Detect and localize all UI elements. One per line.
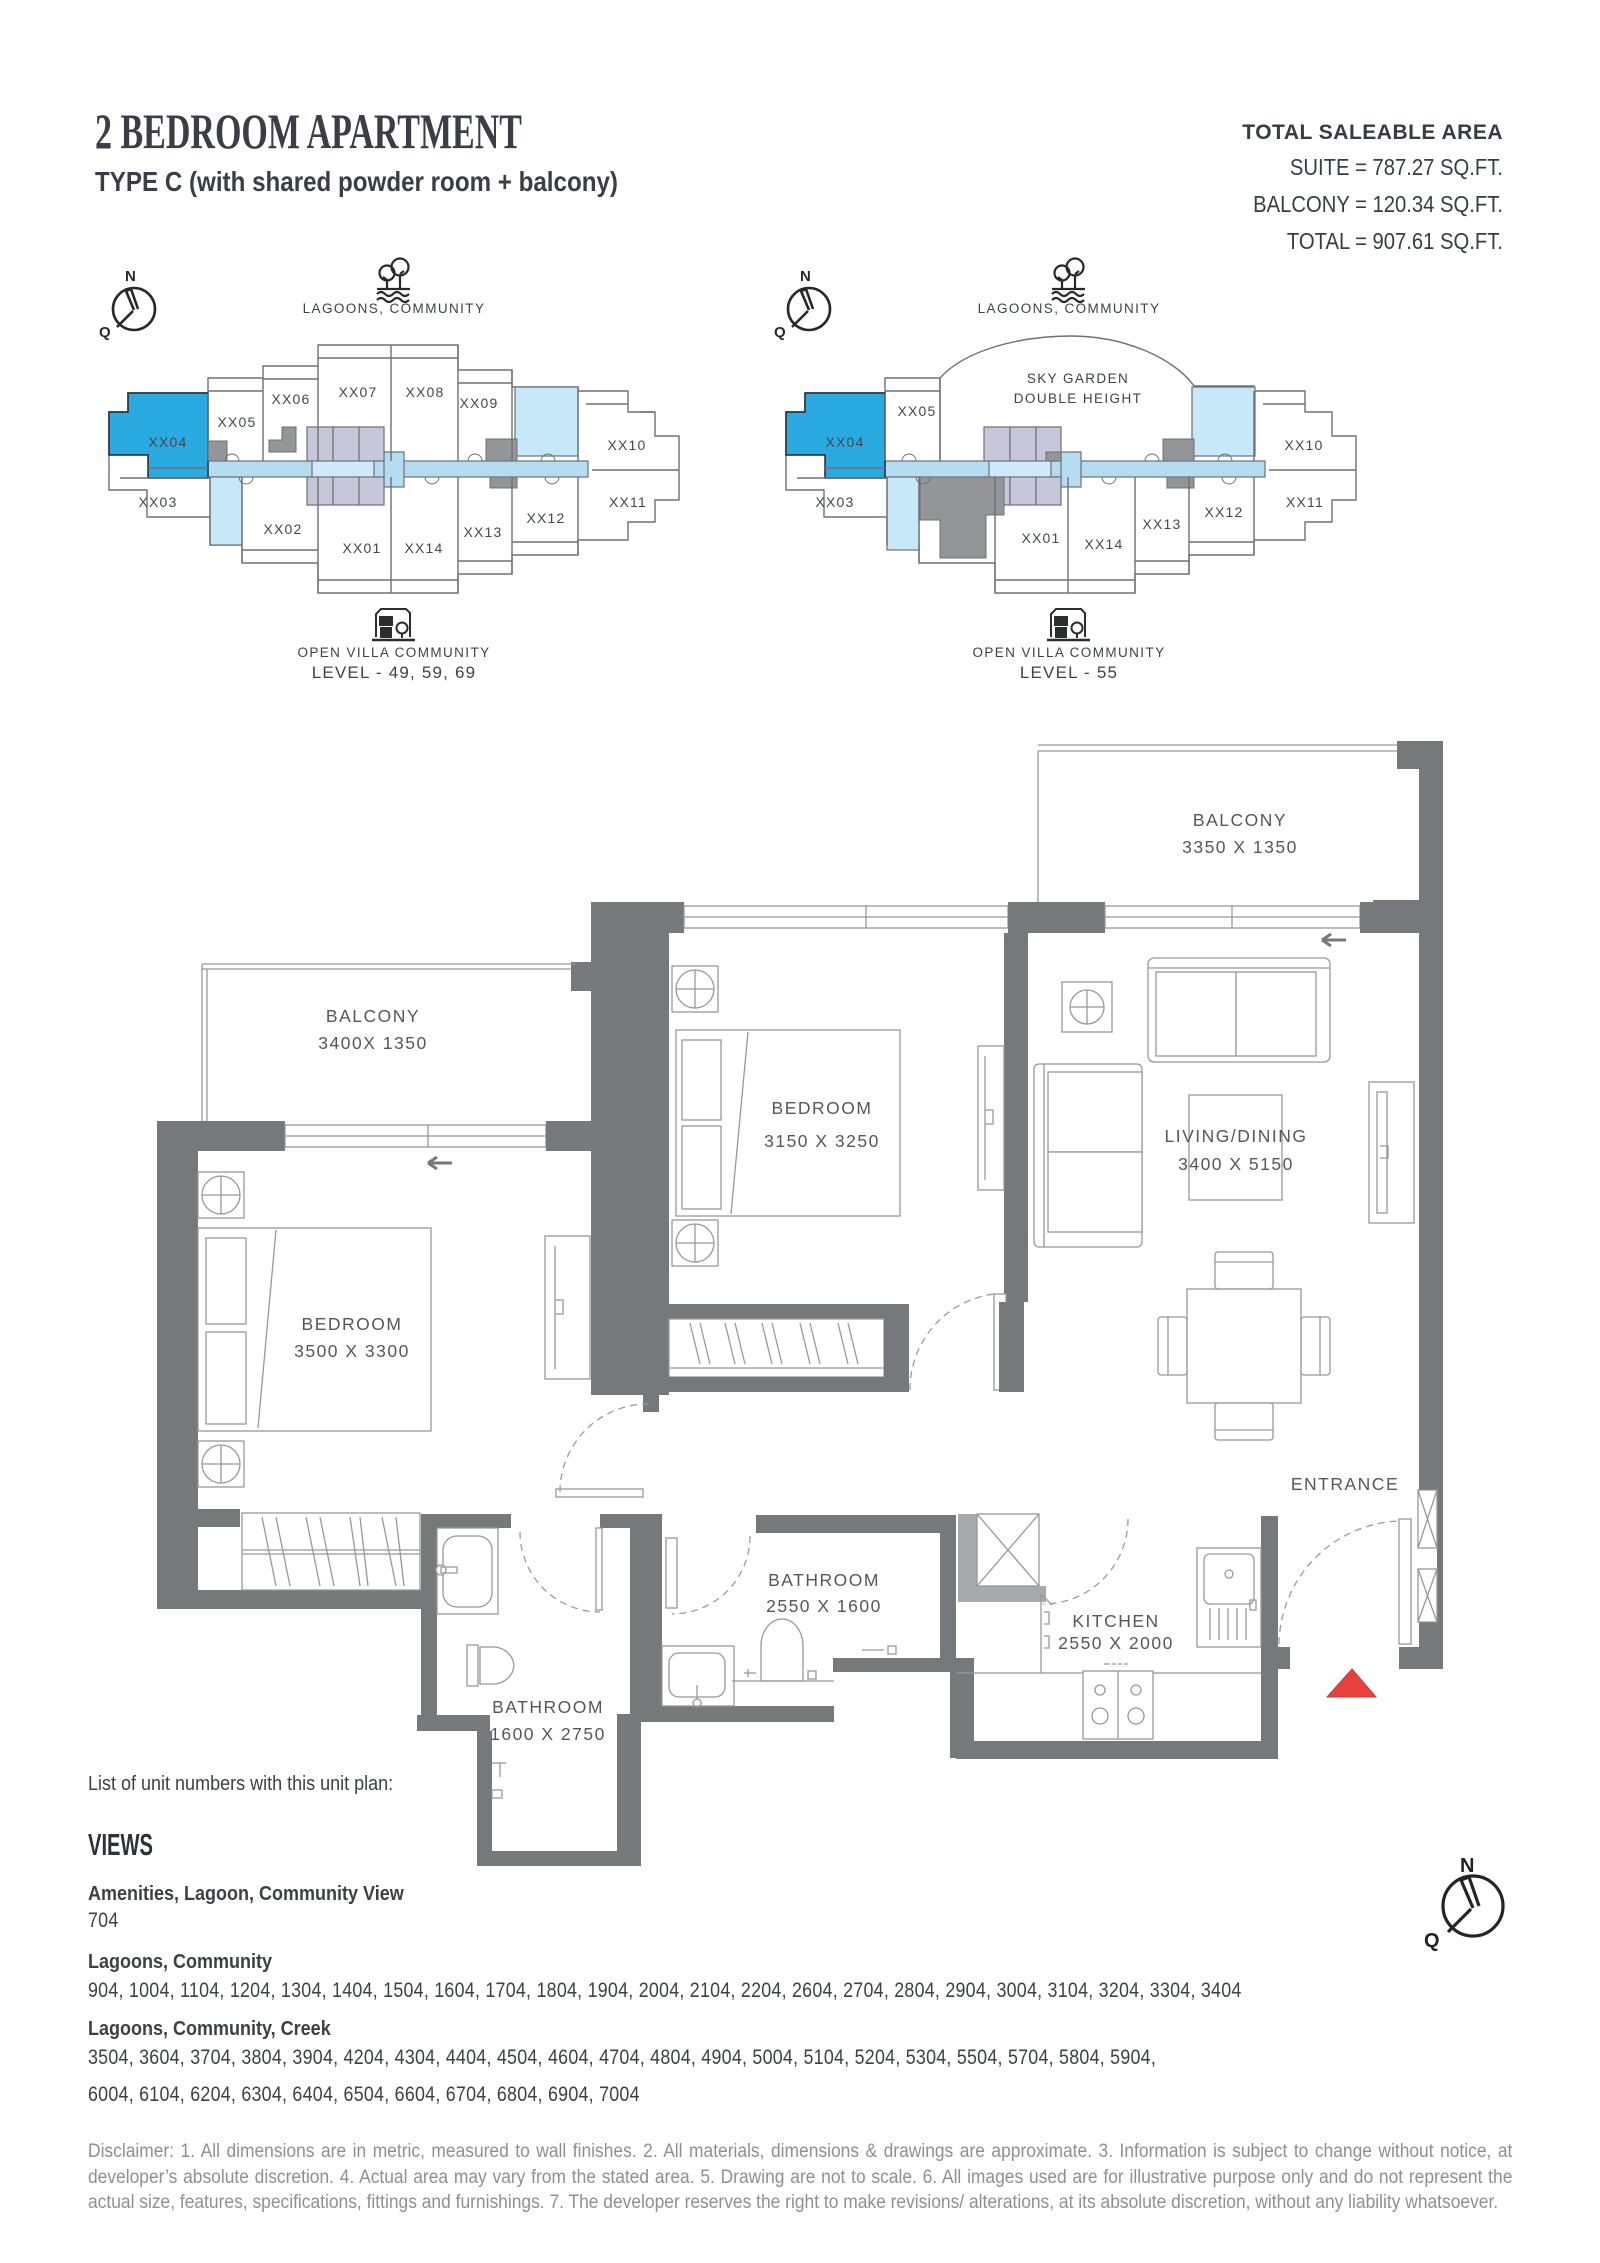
svg-text:XX14: XX14 bbox=[1084, 536, 1123, 552]
svg-text:BATHROOM: BATHROOM bbox=[492, 1697, 604, 1717]
svg-text:XX05: XX05 bbox=[897, 403, 936, 419]
svg-text:XX12: XX12 bbox=[526, 510, 565, 526]
svg-text:LAGOONS, COMMUNITY: LAGOONS, COMMUNITY bbox=[303, 301, 486, 316]
svg-text:ENTRANCE: ENTRANCE bbox=[1291, 1474, 1399, 1494]
svg-text:KITCHEN: KITCHEN bbox=[1072, 1611, 1159, 1631]
svg-text:XX10: XX10 bbox=[607, 437, 646, 453]
svg-text:N: N bbox=[1460, 1855, 1474, 1877]
svg-text:BALCONY: BALCONY bbox=[326, 1006, 420, 1026]
svg-text:3350 X 1350: 3350 X 1350 bbox=[1182, 837, 1298, 857]
svg-text:XX13: XX13 bbox=[1142, 516, 1181, 532]
svg-text:BALCONY: BALCONY bbox=[1193, 810, 1287, 830]
svg-text:OPEN VILLA COMMUNITY: OPEN VILLA COMMUNITY bbox=[972, 645, 1165, 660]
svg-text:XX07: XX07 bbox=[338, 384, 377, 400]
svg-text:BEDROOM: BEDROOM bbox=[302, 1314, 403, 1334]
svg-text:3500 X 3300: 3500 X 3300 bbox=[294, 1341, 410, 1361]
svg-text:XX11: XX11 bbox=[609, 494, 647, 510]
svg-text:LEVEL - 55: LEVEL - 55 bbox=[1020, 663, 1118, 682]
svg-text:3400X 1350: 3400X 1350 bbox=[318, 1033, 427, 1053]
svg-text:LEVEL - 49, 59, 69: LEVEL - 49, 59, 69 bbox=[312, 663, 477, 682]
svg-text:XX08: XX08 bbox=[405, 384, 444, 400]
svg-text:LAGOONS, COMMUNITY: LAGOONS, COMMUNITY bbox=[978, 301, 1161, 316]
svg-text:XX09: XX09 bbox=[459, 395, 498, 411]
svg-text:XX04: XX04 bbox=[825, 434, 864, 450]
svg-text:BATHROOM: BATHROOM bbox=[768, 1570, 880, 1590]
svg-text:XX05: XX05 bbox=[217, 414, 256, 430]
svg-text:N: N bbox=[800, 268, 811, 285]
svg-text:1600 X 2750: 1600 X 2750 bbox=[490, 1724, 606, 1744]
svg-text:DOUBLE HEIGHT: DOUBLE HEIGHT bbox=[1014, 391, 1142, 406]
svg-text:LIVING/DINING: LIVING/DINING bbox=[1165, 1126, 1308, 1146]
svg-text:XX01: XX01 bbox=[342, 540, 381, 556]
svg-text:Q: Q bbox=[99, 324, 111, 341]
svg-text:XX14: XX14 bbox=[404, 540, 443, 556]
svg-text:XX02: XX02 bbox=[263, 521, 302, 537]
svg-text:XX06: XX06 bbox=[271, 391, 310, 407]
svg-text:XX11: XX11 bbox=[1286, 494, 1324, 510]
svg-text:XX10: XX10 bbox=[1284, 437, 1323, 453]
svg-text:XX01: XX01 bbox=[1021, 530, 1060, 546]
svg-text:XX04: XX04 bbox=[148, 434, 187, 450]
svg-text:XX12: XX12 bbox=[1204, 504, 1243, 520]
svg-text:XX03: XX03 bbox=[138, 494, 177, 510]
svg-text:Q: Q bbox=[774, 324, 786, 341]
svg-text:SKY GARDEN: SKY GARDEN bbox=[1027, 371, 1129, 386]
svg-text:2550 X 1600: 2550 X 1600 bbox=[766, 1596, 882, 1616]
svg-text:N: N bbox=[125, 268, 136, 285]
svg-text:XX13: XX13 bbox=[463, 524, 502, 540]
svg-text:OPEN VILLA COMMUNITY: OPEN VILLA COMMUNITY bbox=[297, 645, 490, 660]
svg-text:2550 X 2000: 2550 X 2000 bbox=[1058, 1633, 1174, 1653]
svg-text:BEDROOM: BEDROOM bbox=[772, 1098, 873, 1118]
svg-text:3150 X 3250: 3150 X 3250 bbox=[764, 1131, 880, 1151]
svg-text:Q: Q bbox=[1424, 1930, 1440, 1952]
svg-text:3400 X 5150: 3400 X 5150 bbox=[1178, 1154, 1294, 1174]
svg-text:XX03: XX03 bbox=[815, 494, 854, 510]
